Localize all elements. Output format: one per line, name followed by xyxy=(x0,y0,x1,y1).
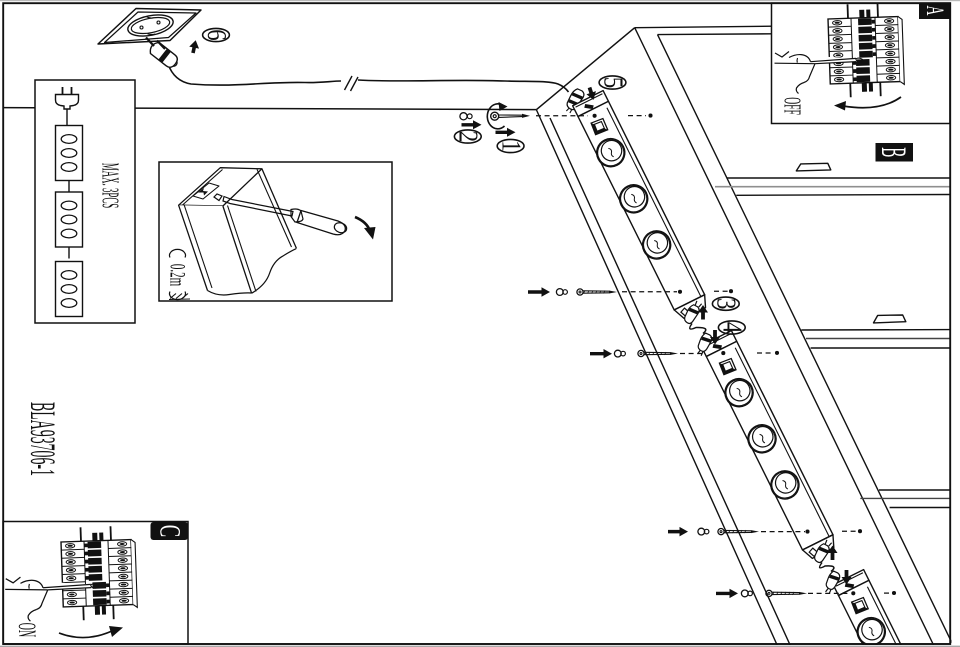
svg-text:B: B xyxy=(874,147,914,157)
svg-text:BLA93706-1: BLA93706-1 xyxy=(23,402,63,476)
svg-text:1: 1 xyxy=(496,140,525,151)
svg-text:4: 4 xyxy=(717,322,746,334)
svg-text:MAX. 3PCS: MAX. 3PCS xyxy=(97,163,124,208)
svg-text:5: 5 xyxy=(598,77,627,88)
svg-text:0.2m: 0.2m xyxy=(165,264,189,287)
svg-text:A: A xyxy=(921,6,948,16)
svg-text:OFF: OFF xyxy=(779,97,805,115)
svg-text:6: 6 xyxy=(201,29,230,40)
svg-text:2: 2 xyxy=(453,131,482,142)
svg-text:C: C xyxy=(153,525,185,537)
svg-text:3: 3 xyxy=(711,298,740,309)
svg-text:ON: ON xyxy=(12,623,40,638)
